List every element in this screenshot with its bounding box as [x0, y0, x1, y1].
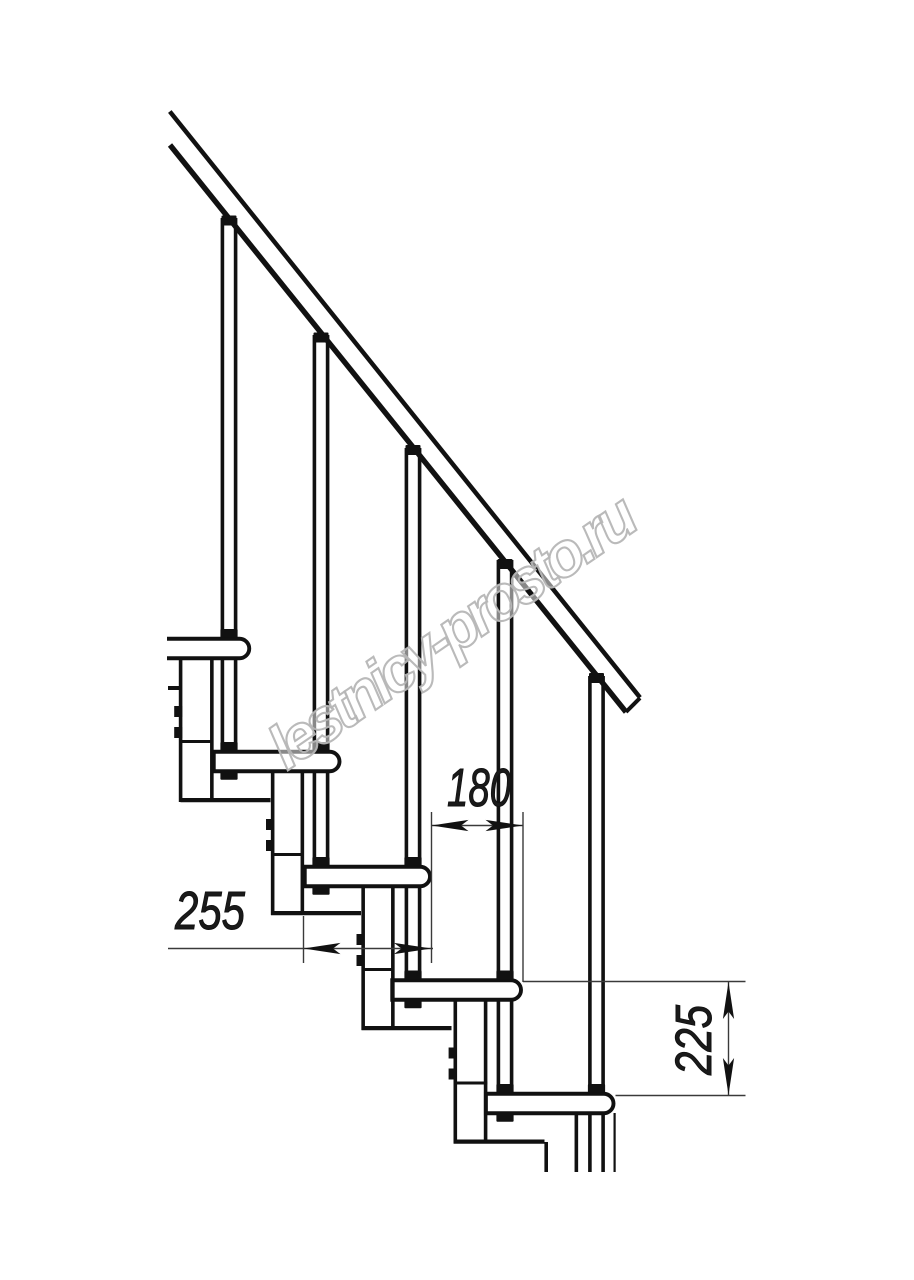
svg-text:255: 255	[174, 881, 246, 941]
svg-text:180: 180	[447, 758, 511, 818]
svg-text:225: 225	[665, 1004, 722, 1075]
